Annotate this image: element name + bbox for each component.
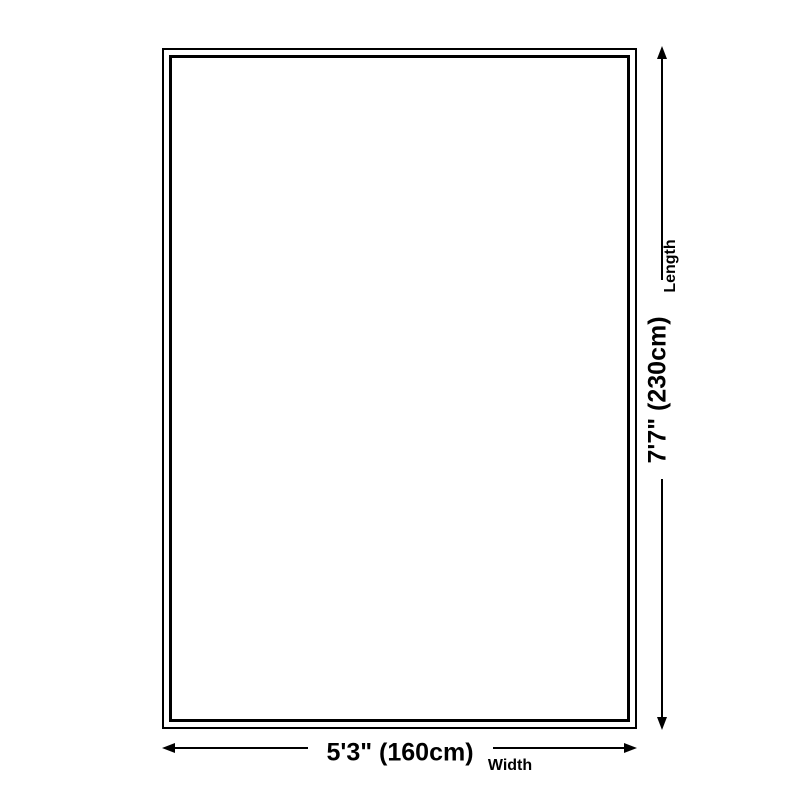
rug-size-diagram: Length 7'7" (230cm) 5'3" (160cm) Width bbox=[0, 0, 800, 800]
rug-inner-outline bbox=[169, 55, 630, 722]
arrow-down-icon bbox=[657, 717, 667, 730]
width-label: Width bbox=[488, 758, 532, 774]
width-value: 5'3" (160cm) bbox=[326, 741, 473, 766]
length-value: 7'7" (230cm) bbox=[646, 316, 671, 463]
width-line-left-segment bbox=[174, 747, 308, 749]
rug-outline bbox=[162, 48, 637, 729]
length-label: Length bbox=[663, 239, 679, 292]
length-line-bottom-segment bbox=[661, 479, 663, 718]
arrow-right-icon bbox=[624, 743, 637, 753]
width-line-right-segment bbox=[493, 747, 624, 749]
